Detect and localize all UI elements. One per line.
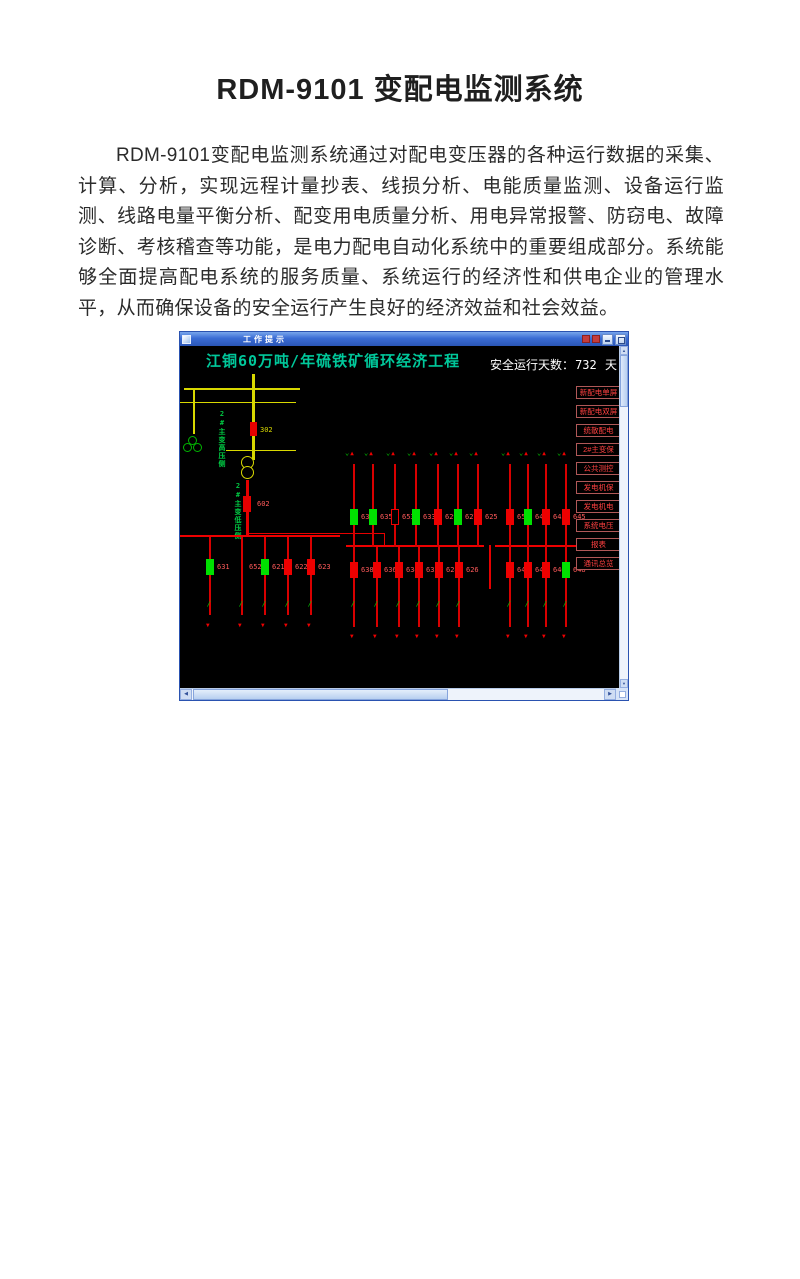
breaker-box[interactable]	[434, 509, 442, 525]
safety-label: 安全运行天数：	[490, 358, 574, 372]
scroll-left-icon[interactable]: ◀	[180, 689, 192, 700]
vertical-scrollbar[interactable]: ▲ ▼	[619, 346, 628, 688]
safety-unit: 天	[605, 358, 617, 372]
disconnector-icon	[563, 591, 567, 610]
body-paragraph: RDM-9101变配电监测系统通过对配电变压器的各种运行数据的采集、计算、分析，…	[78, 141, 724, 324]
app-icon	[182, 335, 191, 344]
disconnector-icon	[525, 591, 529, 610]
breaker-id: 652	[249, 563, 262, 571]
load-arrow-icon	[524, 623, 528, 642]
feeder-status-icon	[519, 449, 528, 457]
window-title: 工作提示	[243, 334, 287, 345]
load-arrow-icon	[415, 623, 419, 642]
feeder-line	[509, 547, 511, 627]
feeder-line	[527, 547, 529, 627]
feeder-line	[437, 464, 439, 547]
hv-bus-line-3	[226, 450, 296, 451]
page-title: RDM-9101 变配电监测系统	[0, 66, 800, 108]
feeder-line	[457, 464, 459, 547]
window-body: 江铜60万吨/年硫铁矿循环经济工程 安全运行天数：732 天 302 2#主变高…	[180, 346, 628, 688]
bus-II	[180, 535, 340, 537]
feeder-line	[565, 547, 567, 627]
disconnector-icon	[308, 591, 312, 610]
hv-bus-line-2	[180, 402, 296, 403]
load-arrow-icon	[350, 623, 354, 642]
load-arrow-icon	[435, 623, 439, 642]
maximize-icon[interactable]	[615, 334, 626, 345]
window-bottom-bar: ◀ ▶	[180, 688, 628, 700]
feeder-status-icon	[364, 449, 373, 457]
window-titlebar[interactable]: 工作提示	[180, 332, 628, 346]
disconnector-icon	[374, 591, 378, 610]
app-window: 工作提示 江铜60万吨/年硫铁矿循环经济工程 安全运行天数：732 天 302	[179, 331, 629, 701]
feeder-line	[458, 547, 460, 627]
vertical-scroll-track[interactable]	[620, 407, 628, 679]
safety-value: 732	[575, 358, 597, 372]
load-arrow-icon	[261, 612, 265, 631]
disconnector-icon	[396, 591, 400, 610]
hv-side-label: 2#主变高压侧	[218, 410, 226, 468]
breaker-box[interactable]	[506, 509, 514, 525]
load-arrow-icon	[506, 623, 510, 642]
scroll-up-icon[interactable]: ▲	[620, 346, 628, 355]
scroll-corner	[616, 688, 628, 700]
menu-button[interactable]: 发电机电	[576, 500, 619, 513]
menu-button[interactable]: 2#主变保	[576, 443, 619, 456]
scada-canvas: 江铜60万吨/年硫铁矿循环经济工程 安全运行天数：732 天 302 2#主变高…	[180, 346, 619, 688]
load-arrow-icon	[307, 612, 311, 631]
feeder-status-icon	[501, 449, 510, 457]
feeder-line	[353, 547, 355, 627]
hv-breaker-label: 302	[260, 426, 273, 434]
feeder-status-icon	[407, 449, 416, 457]
feeder-line	[398, 547, 400, 627]
breaker-box[interactable]	[369, 509, 377, 525]
load-arrow-icon	[284, 612, 288, 631]
breaker-box[interactable]	[454, 509, 462, 525]
breaker-box[interactable]	[562, 509, 570, 525]
breaker-id: 638	[361, 566, 374, 574]
menu-button[interactable]: 通讯总览	[576, 557, 619, 570]
aux-transformer-icon	[193, 443, 202, 452]
breaker-box[interactable]	[307, 559, 315, 575]
disconnector-icon	[543, 591, 547, 610]
load-arrow-icon	[206, 612, 210, 631]
load-arrow-icon	[455, 623, 459, 642]
horizontal-scroll-thumb[interactable]	[193, 689, 448, 700]
breaker-box[interactable]	[261, 559, 269, 575]
breaker-id: 626	[466, 566, 479, 574]
bus-tie-line	[489, 545, 491, 589]
breaker-box[interactable]	[415, 562, 423, 578]
feeder-line	[415, 464, 417, 547]
disconnector-icon	[207, 591, 211, 610]
breaker-box[interactable]	[373, 562, 381, 578]
scroll-down-icon[interactable]: ▼	[620, 679, 628, 688]
feeder-line	[394, 464, 396, 547]
lv-breaker-label: 602	[257, 500, 270, 508]
breaker-id: 631	[217, 563, 230, 571]
minimize-icon[interactable]	[602, 334, 613, 345]
feeder-line	[477, 464, 479, 547]
feeder-status-icon	[469, 449, 478, 457]
screen-menu: 新配电单屏新配电双屏统散配电2#主变保公共测控发电机保发电机电系统电压报表通讯总…	[576, 386, 619, 570]
breaker-box[interactable]	[524, 509, 532, 525]
breaker-box[interactable]	[284, 559, 292, 575]
hv-main-riser	[252, 374, 255, 460]
disconnector-icon	[239, 591, 243, 610]
bus-connector-h	[247, 533, 385, 534]
breaker-box[interactable]	[206, 559, 214, 575]
breaker-id: 625	[485, 513, 498, 521]
breaker-box[interactable]	[395, 562, 403, 578]
aux-transformer-icon	[183, 443, 192, 452]
feeder-line	[527, 464, 529, 547]
breaker-box[interactable]	[542, 562, 550, 578]
load-arrow-icon	[238, 612, 242, 631]
breaker-box[interactable]	[350, 562, 358, 578]
breaker-box[interactable]	[524, 562, 532, 578]
breaker-box[interactable]	[506, 562, 514, 578]
feeder-status-icon	[557, 449, 566, 457]
feeder-status-icon	[537, 449, 546, 457]
menu-button[interactable]: 发电机保	[576, 481, 619, 494]
document-page: RDM-9101 变配电监测系统 RDM-9101变配电监测系统通过对配电变压器…	[0, 0, 800, 1279]
diagram-title: 江铜60万吨/年硫铁矿循环经济工程	[206, 350, 460, 371]
feeder-line	[372, 464, 374, 547]
load-arrow-icon	[542, 623, 546, 642]
feeder-status-icon	[429, 449, 438, 457]
titlebar-red-icon-1[interactable]	[582, 335, 590, 343]
feeder-status-icon	[345, 449, 354, 457]
feeder-line	[545, 464, 547, 547]
bus-connector-v	[384, 533, 385, 546]
load-arrow-icon	[562, 623, 566, 642]
feeder-line	[376, 547, 378, 627]
disconnector-icon	[456, 591, 460, 610]
breaker-box[interactable]	[455, 562, 463, 578]
vertical-scroll-thumb[interactable]	[620, 355, 628, 407]
breaker-box[interactable]	[391, 509, 399, 525]
breaker-id: 621	[272, 563, 285, 571]
breaker-box[interactable]	[412, 509, 420, 525]
breaker-id: 622	[295, 563, 308, 571]
horizontal-scrollbar[interactable]: ◀ ▶	[180, 688, 616, 700]
disconnector-icon	[436, 591, 440, 610]
main-transformer-icon[interactable]	[241, 466, 254, 479]
disconnector-icon	[416, 591, 420, 610]
feeder-line	[353, 464, 355, 547]
breaker-box[interactable]	[350, 509, 358, 525]
menu-button[interactable]: 新配电单屏	[576, 386, 619, 399]
load-arrow-icon	[373, 623, 377, 642]
menu-button[interactable]: 系统电压	[576, 519, 619, 532]
disconnector-icon	[351, 591, 355, 610]
lv-breaker-602[interactable]	[243, 496, 251, 512]
feeder-line	[438, 547, 440, 627]
breaker-box[interactable]	[474, 509, 482, 525]
lv-side-label: 2#主变低压侧	[234, 482, 242, 540]
hv-bus-line-1	[184, 388, 300, 390]
disconnector-icon	[285, 591, 289, 610]
safety-days: 安全运行天数：732 天	[490, 356, 618, 373]
feeder-line	[509, 464, 511, 547]
feeder-status-icon	[386, 449, 395, 457]
hv-left-drop	[193, 388, 195, 434]
menu-button[interactable]: 统散配电	[576, 424, 619, 437]
disconnector-icon	[507, 591, 511, 610]
feeder-line	[565, 464, 567, 547]
menu-button[interactable]: 报表	[576, 538, 619, 551]
hv-breaker-302[interactable]	[250, 422, 257, 436]
scroll-right-icon[interactable]: ▶	[604, 689, 616, 700]
menu-button[interactable]: 新配电双屏	[576, 405, 619, 418]
menu-button[interactable]: 公共测控	[576, 462, 619, 475]
feeder-line	[418, 547, 420, 627]
load-arrow-icon	[395, 623, 399, 642]
breaker-box[interactable]	[435, 562, 443, 578]
window-controls	[582, 334, 626, 345]
feeder-line	[545, 547, 547, 627]
breaker-id: 623	[318, 563, 331, 571]
disconnector-icon	[262, 591, 266, 610]
breaker-box[interactable]	[562, 562, 570, 578]
titlebar-red-icon-2[interactable]	[592, 335, 600, 343]
breaker-box[interactable]	[542, 509, 550, 525]
feeder-status-icon	[449, 449, 458, 457]
